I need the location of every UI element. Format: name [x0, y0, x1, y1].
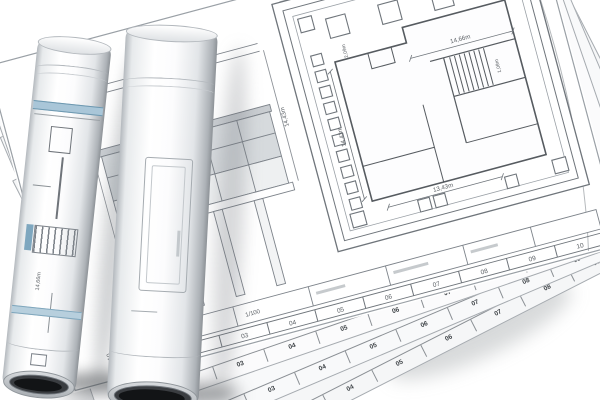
blueprint-photo-scene: 01020304050607080910 0102030405060708091… — [0, 0, 600, 400]
roll1-end-hole — [13, 377, 62, 394]
plan-corner-column — [298, 16, 315, 33]
roll2-seam-line — [110, 345, 200, 360]
roll1-seam-line — [7, 337, 80, 354]
blueprint-roll-right — [106, 28, 217, 400]
roll1-small-rect — [30, 353, 47, 367]
roll2-tick-line — [131, 310, 157, 313]
roll2-end-ring — [113, 383, 192, 400]
roll1-rolled-end — [2, 367, 76, 400]
plan-corner-column — [350, 211, 367, 228]
roll1-tick-line — [33, 184, 51, 187]
roll2-outline-rect-inner — [146, 165, 186, 285]
roll2-rolled-end — [107, 379, 198, 400]
plan-corner-column — [552, 157, 569, 174]
roll1-square-outline — [48, 126, 73, 154]
roll1-dim-label: 14,66m — [35, 250, 45, 290]
roll1-wall-line — [55, 157, 63, 219]
roll2-end-hole — [118, 388, 185, 400]
roll1-blue-band — [11, 305, 81, 320]
roll1-end-ring — [8, 372, 70, 397]
